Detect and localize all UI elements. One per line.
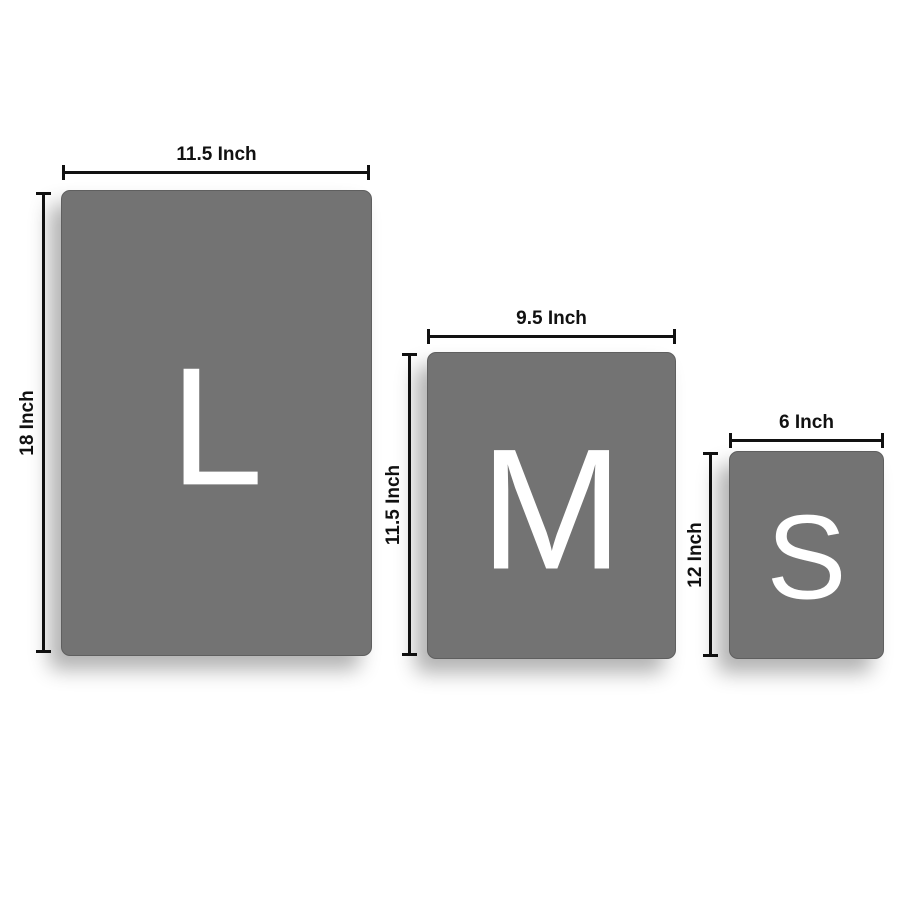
size-panel-medium: M [427,352,676,659]
small-height-label: 12 Inch [685,522,707,587]
large-width-label: 11.5 Inch [61,144,372,166]
small-width-label: 6 Inch [729,412,884,434]
size-comparison-diagram: 11.5 Inch 18 Inch L 9.5 Inch 11.5 Inch M… [0,0,900,900]
size-panel-small: S [729,451,884,659]
large-height-label: 18 Inch [17,390,39,455]
large-height-dimension-line [42,192,45,653]
large-width-dimension-line [62,171,370,174]
medium-height-label: 11.5 Inch [383,465,405,545]
size-panel-large: L [61,190,372,656]
small-height-dimension-line [709,452,712,657]
small-width-dimension-line [729,439,884,442]
medium-size-letter: M [480,423,623,595]
medium-height-dimension-line [408,353,411,656]
small-size-letter: S [766,497,846,617]
large-size-letter: L [170,342,263,510]
medium-width-dimension-line [427,335,676,338]
medium-width-label: 9.5 Inch [427,308,676,330]
